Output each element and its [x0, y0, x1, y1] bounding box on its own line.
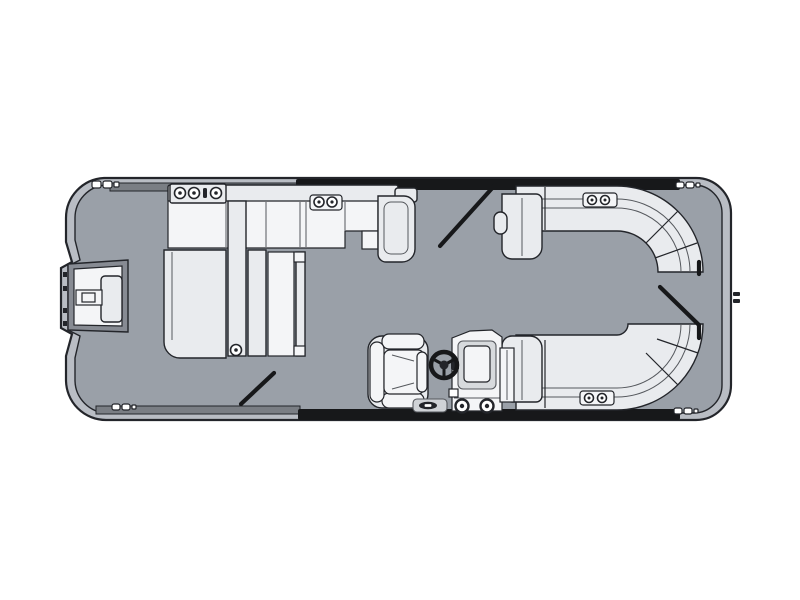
floorplan-svg — [0, 0, 800, 600]
cleat-bottom-left — [112, 404, 136, 410]
bow-platform — [63, 260, 128, 332]
boarding-step — [413, 399, 447, 412]
bow-ladder — [76, 290, 102, 305]
stern-speaker-bottom — [580, 391, 614, 405]
cleat-top-right — [676, 182, 700, 188]
forward-speaker — [310, 195, 342, 210]
cleat-top-left — [92, 181, 119, 188]
stern-speaker-top — [583, 193, 617, 207]
cleat-bottom-right — [674, 408, 698, 414]
transom-fitting — [733, 292, 740, 303]
cupholder-armrest — [170, 184, 226, 203]
floorplan-image — [0, 0, 800, 600]
captains-chair — [368, 334, 428, 408]
chaise-lounger — [164, 250, 226, 358]
